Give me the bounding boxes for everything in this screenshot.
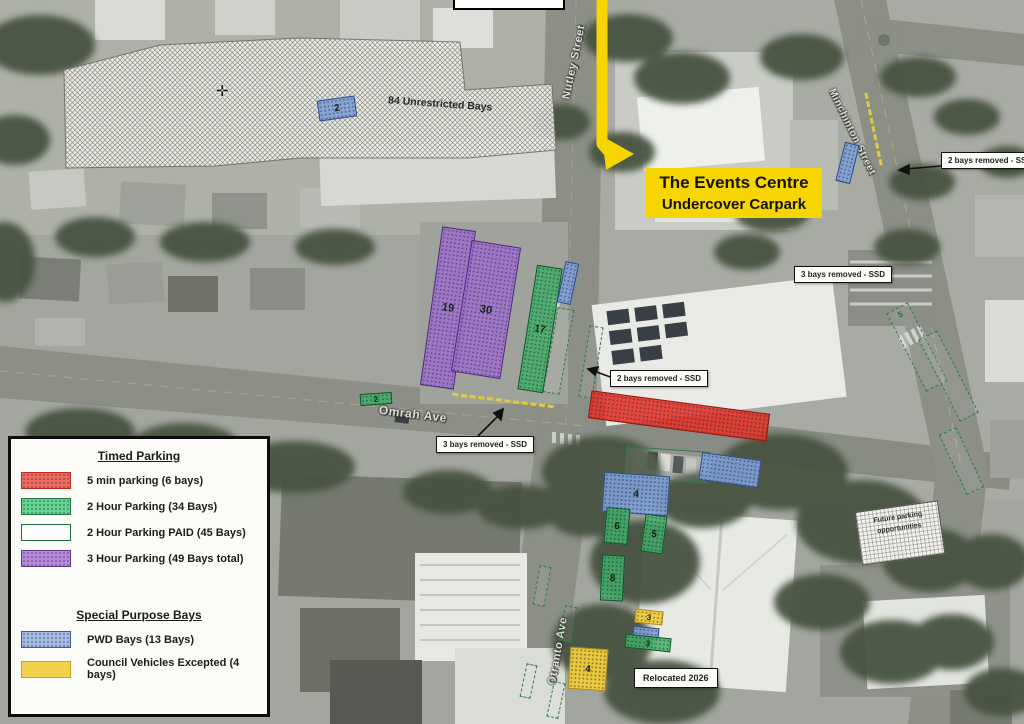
legend-item-pwd: PWD Bays (13 Bays) [21, 631, 267, 648]
green-swatch [21, 498, 71, 515]
paid-swatch [21, 524, 71, 541]
legend-timed-title: Timed Parking [11, 449, 267, 463]
future-parking-line2: opportunities [877, 521, 922, 534]
council-bay-small: 3 [634, 609, 663, 626]
cutoff-callout-top [453, 0, 565, 10]
legend-item-5min: 5 min parking (6 bays) [21, 472, 267, 489]
2hr-parking-block-c: 8 [600, 554, 625, 601]
events-centre-line2: Undercover Carpark [654, 196, 814, 213]
callout-2bays-removed-top-right: 2 bays removed - SSD [941, 152, 1024, 169]
yellow-swatch [21, 661, 71, 678]
2hr-parking-block-a: 6 [603, 507, 630, 545]
legend-special-title: Special Purpose Bays [11, 608, 267, 622]
events-centre-label: The Events Centre Undercover Carpark [646, 168, 822, 218]
callout-2bays-removed-mid: 2 bays removed - SSD [610, 370, 708, 387]
legend-item-3hr: 3 Hour Parking (49 Bays total) [21, 550, 267, 567]
council-bay-block: 4 [568, 647, 609, 692]
parking-map: Nutley Street Minchinton Street Omrah Av… [0, 0, 1024, 724]
legend-panel: Timed Parking 5 min parking (6 bays) 2 H… [8, 436, 270, 717]
callout-relocated: Relocated 2026 [634, 668, 718, 688]
2hr-parking-omrah: 2 [360, 392, 393, 406]
legend-item-council: Council Vehicles Excepted (4 bays) [21, 657, 267, 681]
move-cursor-icon: ✛ [216, 82, 229, 100]
future-parking-zone: Future parking opportunities [855, 500, 946, 565]
purple-swatch [21, 550, 71, 567]
events-centre-line1: The Events Centre [654, 173, 814, 193]
red-swatch [21, 472, 71, 489]
legend-item-2hr-paid: 2 Hour Parking PAID (45 Bays) [21, 524, 267, 541]
callout-3bays-removed-right: 3 bays removed - SSD [794, 266, 892, 283]
blue-swatch [21, 631, 71, 648]
callout-3bays-removed-omrah: 3 bays removed - SSD [436, 436, 534, 453]
legend-item-2hr: 2 Hour Parking (34 Bays) [21, 498, 267, 515]
